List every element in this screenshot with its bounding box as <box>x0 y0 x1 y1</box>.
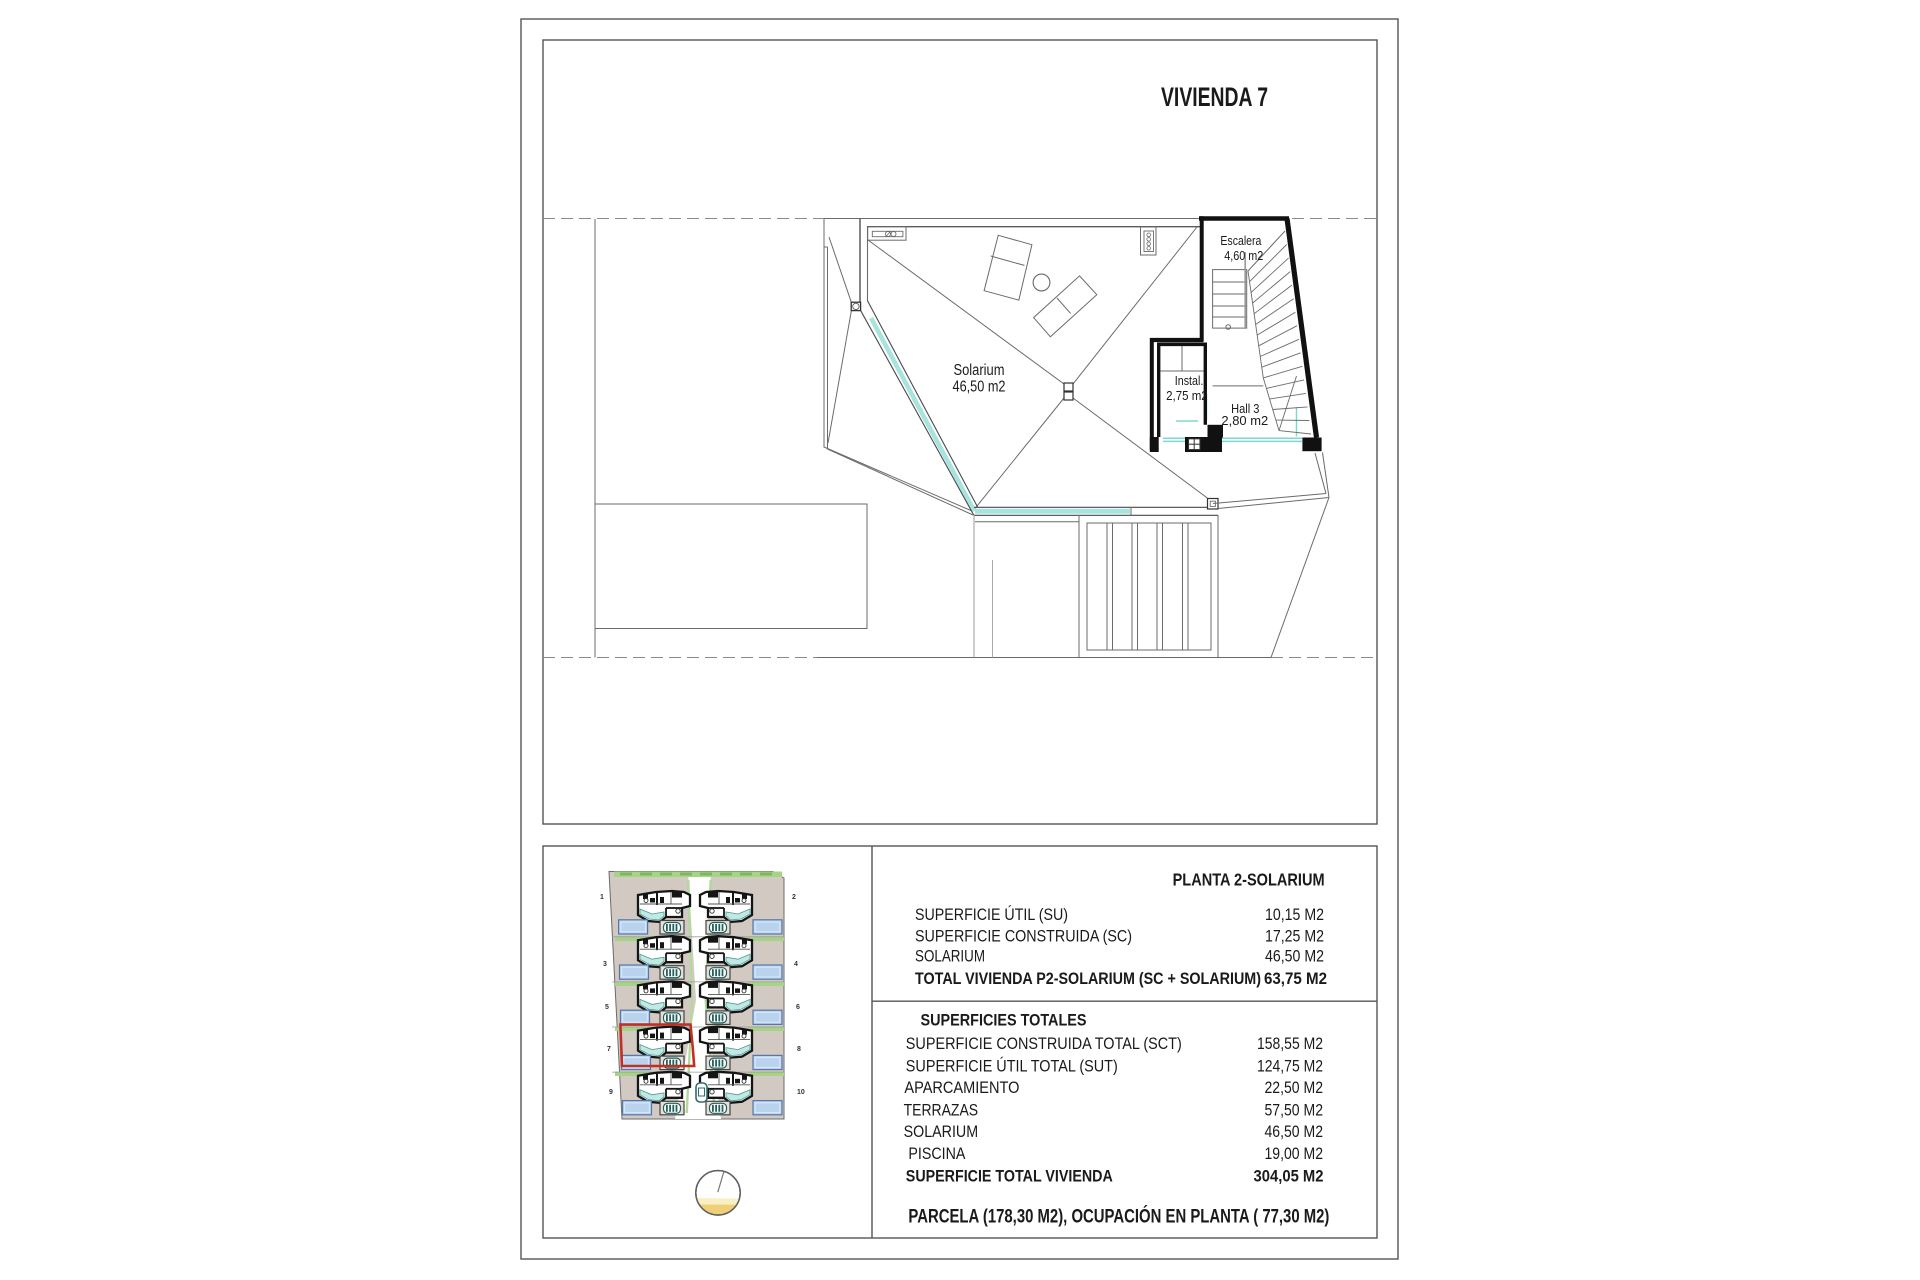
svg-text:APARCAMIENTO: APARCAMIENTO <box>904 1079 1019 1097</box>
svg-text:Escalera: Escalera <box>1220 234 1261 248</box>
svg-text:19,00 M2: 19,00 M2 <box>1265 1145 1324 1163</box>
svg-text:124,75 M2: 124,75 M2 <box>1257 1058 1323 1076</box>
svg-text:10: 10 <box>797 1089 805 1096</box>
svg-text:SUPERFICIES TOTALES: SUPERFICIES TOTALES <box>921 1012 1087 1030</box>
svg-text:SOLARIUM: SOLARIUM <box>904 1123 979 1141</box>
svg-text:57,50 M2: 57,50 M2 <box>1265 1101 1324 1119</box>
svg-text:158,55 M2: 158,55 M2 <box>1257 1035 1323 1053</box>
svg-text:22,50 M2: 22,50 M2 <box>1265 1079 1324 1097</box>
svg-text:SUPERFICIE CONSTRUIDA TOTAL (S: SUPERFICIE CONSTRUIDA TOTAL (SCT) <box>906 1035 1182 1053</box>
svg-text:Instal.: Instal. <box>1175 374 1204 388</box>
svg-text:3: 3 <box>603 961 607 968</box>
svg-text:TOTAL VIVIENDA P2-SOLARIUM (SC: TOTAL VIVIENDA P2-SOLARIUM (SC + SOLARIU… <box>915 970 1261 988</box>
svg-text:PLANTA 2-SOLARIUM: PLANTA 2-SOLARIUM <box>1173 869 1325 889</box>
svg-text:46,50 M2: 46,50 M2 <box>1265 947 1324 965</box>
svg-text:46,50 m2: 46,50 m2 <box>953 379 1006 396</box>
svg-text:SUPERFICIE ÚTIL (SU): SUPERFICIE ÚTIL (SU) <box>915 905 1068 924</box>
svg-text:5: 5 <box>605 1004 609 1011</box>
svg-text:2: 2 <box>792 894 796 901</box>
svg-text:17,25 M2: 17,25 M2 <box>1265 927 1324 945</box>
svg-text:4: 4 <box>794 961 798 968</box>
svg-text:SUPERFICIE ÚTIL TOTAL (SUT): SUPERFICIE ÚTIL TOTAL (SUT) <box>906 1057 1118 1076</box>
svg-text:TERRAZAS: TERRAZAS <box>904 1101 979 1119</box>
svg-text:4,60 m2: 4,60 m2 <box>1224 249 1263 263</box>
svg-text:2,80 m2: 2,80 m2 <box>1221 414 1268 428</box>
svg-text:Solarium: Solarium <box>954 362 1005 379</box>
svg-text:10,15 M2: 10,15 M2 <box>1265 906 1324 924</box>
svg-text:SOLARIUM: SOLARIUM <box>915 947 985 965</box>
svg-text:46,50 M2: 46,50 M2 <box>1265 1123 1324 1141</box>
svg-text:304,05 M2: 304,05 M2 <box>1254 1167 1324 1185</box>
svg-text:6: 6 <box>796 1004 800 1011</box>
svg-text:PARCELA (178,30 M2), OCUPACIÓ: PARCELA (178,30 M2), OCUPACIÓN EN PLANTA… <box>908 1204 1329 1228</box>
svg-text:9: 9 <box>609 1089 613 1096</box>
svg-text:1: 1 <box>600 894 604 901</box>
svg-text:SUPERFICIE CONSTRUIDA (SC): SUPERFICIE CONSTRUIDA (SC) <box>915 927 1132 945</box>
svg-text:PISCINA: PISCINA <box>908 1145 965 1163</box>
svg-text:63,75 M2: 63,75 M2 <box>1264 970 1327 988</box>
svg-text:SUPERFICIE TOTAL VIVIENDA: SUPERFICIE TOTAL VIVIENDA <box>906 1167 1113 1185</box>
svg-text:2,75 m2: 2,75 m2 <box>1166 389 1208 403</box>
svg-text:VIVIENDA 7: VIVIENDA 7 <box>1161 82 1268 112</box>
svg-text:7: 7 <box>607 1046 611 1053</box>
svg-text:8: 8 <box>797 1046 801 1053</box>
